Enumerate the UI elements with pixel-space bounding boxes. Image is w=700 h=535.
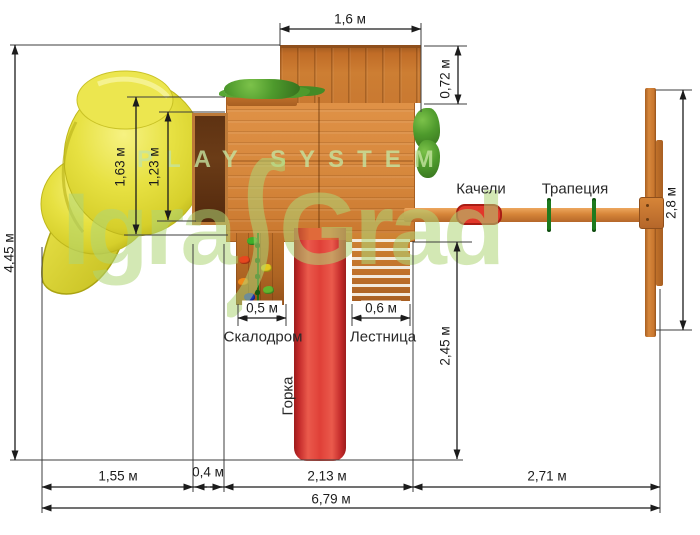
trapeze-handle xyxy=(592,200,596,230)
dim-label-roof-depth: 0,72 м xyxy=(438,59,453,98)
dim-label-roof-width: 1,6 м xyxy=(334,12,366,27)
beam-connector xyxy=(639,197,664,229)
dim-label-balcony-width: 0,4 м xyxy=(192,465,224,480)
watermark-brand: Igra Grad xyxy=(62,158,501,318)
dim-label-swing-zone-depth: 2,45 м xyxy=(438,326,453,365)
dim-label-total-depth: 4,45 м xyxy=(2,233,17,272)
dim-label-tube-slide-inner: 1,23 м xyxy=(147,147,162,186)
climbing-wall-label: Скалодром xyxy=(224,329,303,346)
dim-label-ladder-width: 0,6 м xyxy=(361,301,401,316)
dim-label-tube-zone-width: 1,55 м xyxy=(98,469,137,484)
dim-label-total-width: 6,79 м xyxy=(311,492,350,507)
dim-label-climbing-wall-width: 0,5 м xyxy=(242,301,282,316)
watermark-brand-right: Grad xyxy=(279,158,501,301)
dim-label-crossbar-length: 2,8 м xyxy=(664,187,679,219)
trapeze-label: Трапеция xyxy=(542,181,609,198)
dim-label-swing-section-width: 2,71 м xyxy=(527,469,566,484)
slide-label: Горка xyxy=(280,376,297,415)
planter-foliage xyxy=(224,79,300,99)
playground-plan-diagram: PLAY SYSTEM Igra Grad xyxy=(0,0,700,535)
trapeze-handle xyxy=(547,200,551,230)
swing-label: Качели xyxy=(456,181,506,198)
watermark-swoosh-icon xyxy=(227,158,285,318)
bolt xyxy=(646,218,649,221)
ladder-label: Лестница xyxy=(350,329,416,346)
dim-label-deck-width: 2,13 м xyxy=(307,469,346,484)
roof xyxy=(280,45,421,103)
dim-label-tube-slide-outer: 1,63 м xyxy=(113,147,128,186)
bolt xyxy=(646,204,649,207)
